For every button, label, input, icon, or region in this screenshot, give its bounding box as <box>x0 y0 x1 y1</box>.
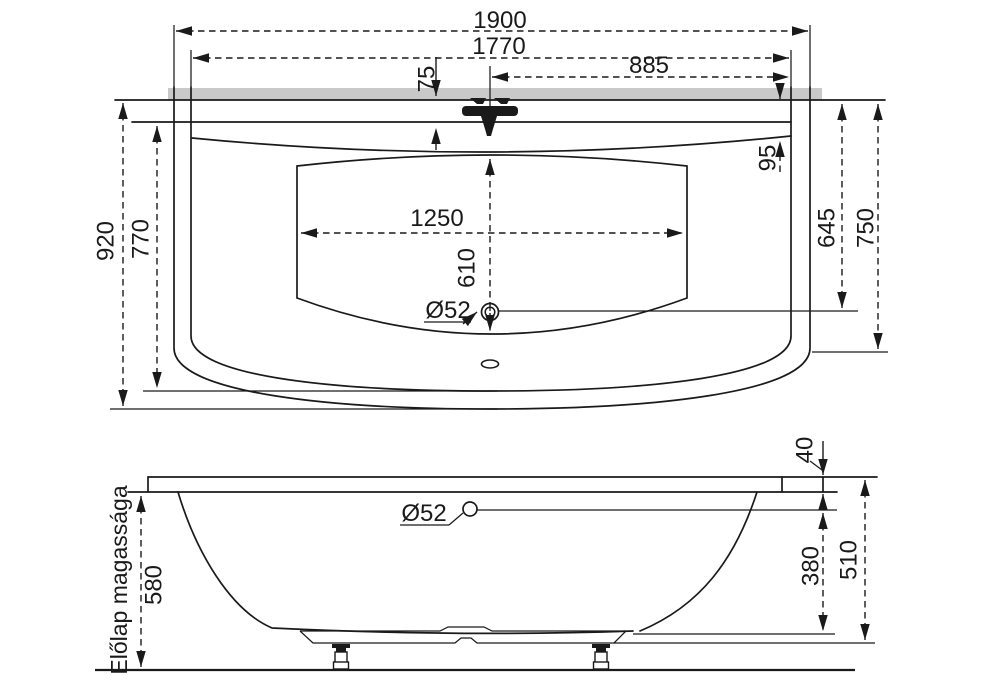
side-view: Ø52 40 <box>95 437 877 675</box>
front-panel-label: Előlap magassága <box>106 485 132 674</box>
overflow-oval <box>482 360 499 368</box>
dim-front-panel-height: 580 Előlap magassága <box>106 485 167 674</box>
dim-label-40: 40 <box>791 437 818 464</box>
drawing-canvas: 1900 1770 885 75 95 920 <box>0 0 990 675</box>
drain-plan <box>482 304 859 369</box>
dim-label-750: 750 <box>852 208 879 248</box>
overflow-side: Ø52 <box>400 500 837 527</box>
dim-label-510: 510 <box>835 540 862 580</box>
dim-floor-length: 1250 <box>301 205 683 233</box>
dim-rim-inner-width: 770 <box>127 126 157 388</box>
dim-label-580: 580 <box>140 565 167 605</box>
dim-back-rim-width: 75 <box>413 57 440 150</box>
dim-label-drain-diameter: Ø52 <box>425 297 470 324</box>
dim-label-770: 770 <box>127 219 154 259</box>
dim-rim-inner-length: 1770 <box>191 33 791 87</box>
tub-outline-side <box>128 477 877 634</box>
dim-center-to-edge: 885 <box>492 52 789 79</box>
plan-view: 1900 1770 885 75 95 920 <box>92 7 888 409</box>
dim-label-885: 885 <box>629 52 669 79</box>
dim-label-1900: 1900 <box>473 7 526 34</box>
dim-label-1250: 1250 <box>410 205 463 232</box>
dim-rim-thickness: 40 <box>791 437 823 506</box>
dim-drain-depth: 645 <box>813 104 842 308</box>
dim-label-overflow-diameter: Ø52 <box>401 500 446 527</box>
dim-label-380: 380 <box>797 546 824 586</box>
dim-label-75: 75 <box>413 66 440 93</box>
dim-label-920: 920 <box>92 221 119 261</box>
support-base <box>300 627 875 669</box>
dim-shell-height: 510 <box>835 480 865 640</box>
dim-label-95: 95 <box>754 145 781 172</box>
foot-left <box>332 644 350 669</box>
bathtub-dimension-drawing: 1900 1770 885 75 95 920 <box>0 0 990 675</box>
dim-overall-width: 920 <box>92 103 123 406</box>
drain-callout-plan: Ø52 <box>424 297 477 324</box>
dim-label-1770: 1770 <box>472 33 525 60</box>
dim-label-610: 610 <box>453 248 480 288</box>
tub-outline-plan <box>110 87 885 409</box>
foot-right <box>592 644 610 669</box>
faucet-icon <box>462 66 518 136</box>
dim-label-645: 645 <box>813 208 840 248</box>
dim-overflow-height: 380 <box>797 513 824 631</box>
